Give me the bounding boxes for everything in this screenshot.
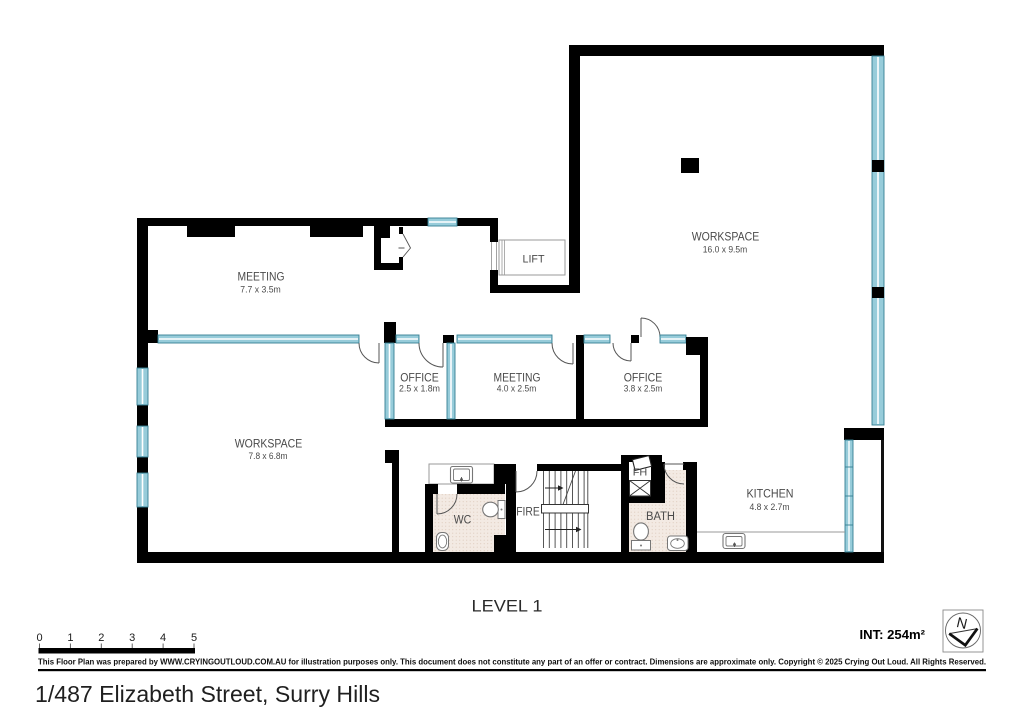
svg-text:This Floor Plan was prepared b: This Floor Plan was prepared by WWW.CRYI… [38, 657, 986, 667]
svg-text:3: 3 [129, 632, 135, 644]
svg-text:2: 2 [98, 632, 104, 644]
svg-text:4: 4 [160, 632, 166, 644]
svg-text:LIFT: LIFT [523, 254, 545, 266]
svg-text:4.8 x 2.7m: 4.8 x 2.7m [750, 502, 790, 512]
svg-text:BATH: BATH [646, 511, 675, 523]
svg-text:4.0 x 2.5m: 4.0 x 2.5m [497, 384, 537, 394]
svg-text:WORKSPACE: WORKSPACE [235, 439, 303, 451]
svg-text:MEETING: MEETING [238, 272, 285, 284]
svg-text:INT: 254m²: INT: 254m² [860, 627, 926, 642]
svg-text:1: 1 [67, 632, 73, 644]
svg-text:FH: FH [633, 468, 648, 479]
svg-text:WORKSPACE: WORKSPACE [692, 232, 760, 244]
svg-text:FIRE: FIRE [516, 507, 540, 519]
svg-text:7.8 x 6.8m: 7.8 x 6.8m [249, 451, 288, 461]
svg-text:7.7 x 3.5m: 7.7 x 3.5m [240, 285, 281, 295]
svg-text:WC: WC [454, 515, 472, 527]
svg-text:LEVEL 1: LEVEL 1 [472, 597, 543, 616]
svg-text:16.0 x 9.5m: 16.0 x 9.5m [703, 245, 748, 255]
svg-text:3.8 x 2.5m: 3.8 x 2.5m [624, 384, 663, 394]
svg-text:KITCHEN: KITCHEN [747, 489, 794, 501]
svg-text:2.5 x 1.8m: 2.5 x 1.8m [399, 384, 440, 394]
svg-text:1/487 Elizabeth Street, Surry: 1/487 Elizabeth Street, Surry Hills [35, 681, 380, 707]
svg-text:5: 5 [191, 632, 197, 644]
svg-text:0: 0 [36, 632, 42, 644]
